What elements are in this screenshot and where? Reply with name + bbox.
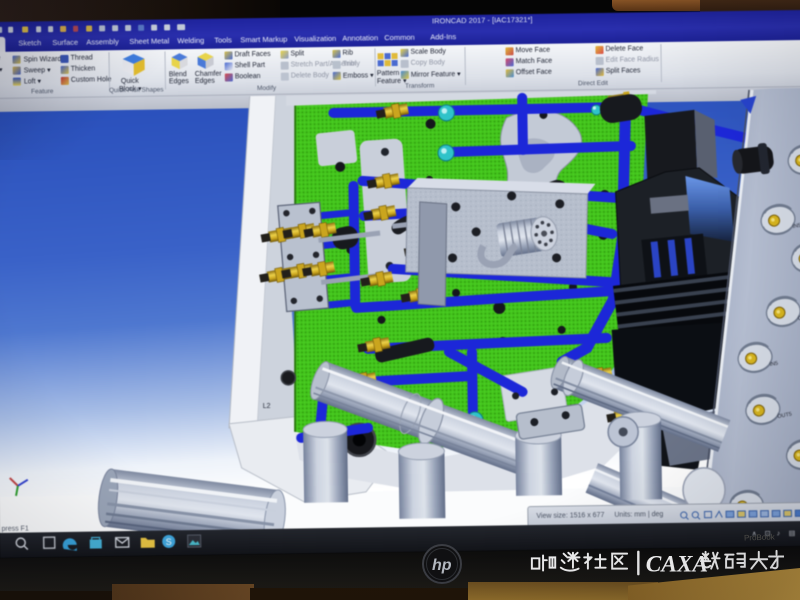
svg-text:▤: ▤ bbox=[789, 530, 796, 537]
svg-text:CAXA: CAXA bbox=[646, 551, 708, 577]
svg-text:♪: ♪ bbox=[777, 530, 781, 537]
svg-text:L2: L2 bbox=[263, 403, 271, 410]
svg-text:hp: hp bbox=[432, 557, 452, 574]
svg-text:IN5: IN5 bbox=[792, 223, 800, 231]
svg-text:S: S bbox=[166, 537, 172, 547]
